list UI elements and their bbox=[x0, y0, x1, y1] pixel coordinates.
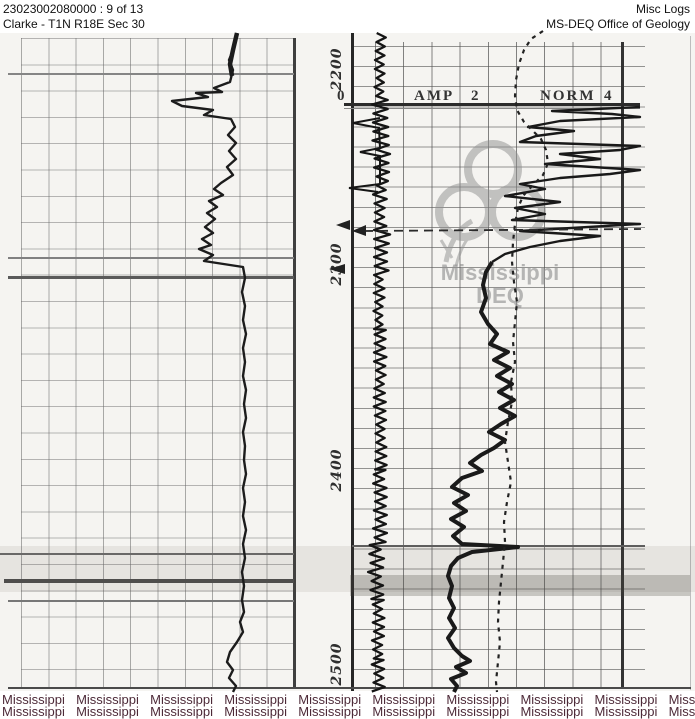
norm-curve-lower bbox=[448, 262, 518, 692]
amp-curve-spikes bbox=[349, 118, 380, 192]
depth-arrow-icon bbox=[329, 264, 345, 274]
marker-dashed-line bbox=[364, 229, 641, 231]
log-curves-overlay: Mississippi DEQ bbox=[0, 0, 695, 715]
sp-curve bbox=[172, 33, 246, 692]
dotted-curve bbox=[496, 31, 548, 692]
watermark-center-line1: Mississippi bbox=[441, 260, 560, 285]
marker-arrow-icon bbox=[352, 225, 366, 236]
depth-arrow-icon bbox=[336, 220, 350, 230]
watermark-row: Mississippi Mississippi Mississippi Miss… bbox=[2, 704, 695, 719]
